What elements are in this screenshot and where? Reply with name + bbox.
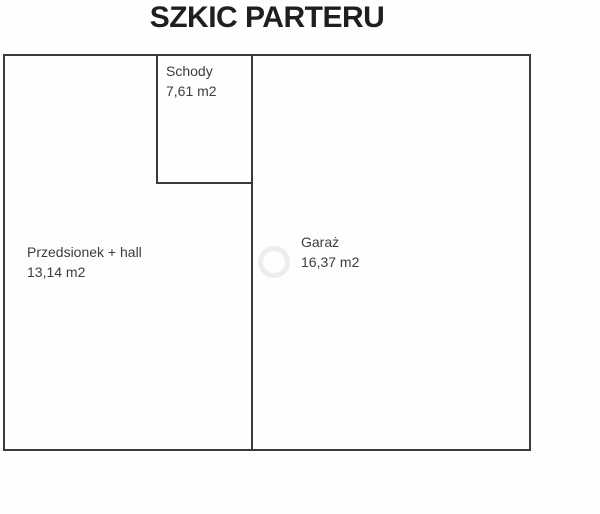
- room-label-garaz: Garaż 16,37 m2: [301, 232, 359, 272]
- room-name-przedsionek-hall: Przedsionek + hall: [27, 242, 142, 262]
- room-label-przedsionek-hall: Przedsionek + hall 13,14 m2: [27, 242, 142, 282]
- room-name-garaz: Garaż: [301, 232, 359, 252]
- schody-wall-bottom: [156, 182, 253, 184]
- room-area-schody: 7,61 m2: [166, 81, 217, 101]
- watermark-ring-icon: [258, 246, 290, 278]
- room-name-schody: Schody: [166, 61, 217, 81]
- room-label-schody: Schody 7,61 m2: [166, 61, 217, 101]
- page-title: SZKIC PARTERU: [0, 1, 534, 35]
- hall-garage-divider-wall: [251, 54, 253, 451]
- room-area-przedsionek-hall: 13,14 m2: [27, 262, 142, 282]
- floorplan-sketch: SZKIC PARTERU Schody 7,61 m2 Przedsionek…: [0, 0, 600, 514]
- schody-wall-left: [156, 54, 158, 184]
- room-area-garaz: 16,37 m2: [301, 252, 359, 272]
